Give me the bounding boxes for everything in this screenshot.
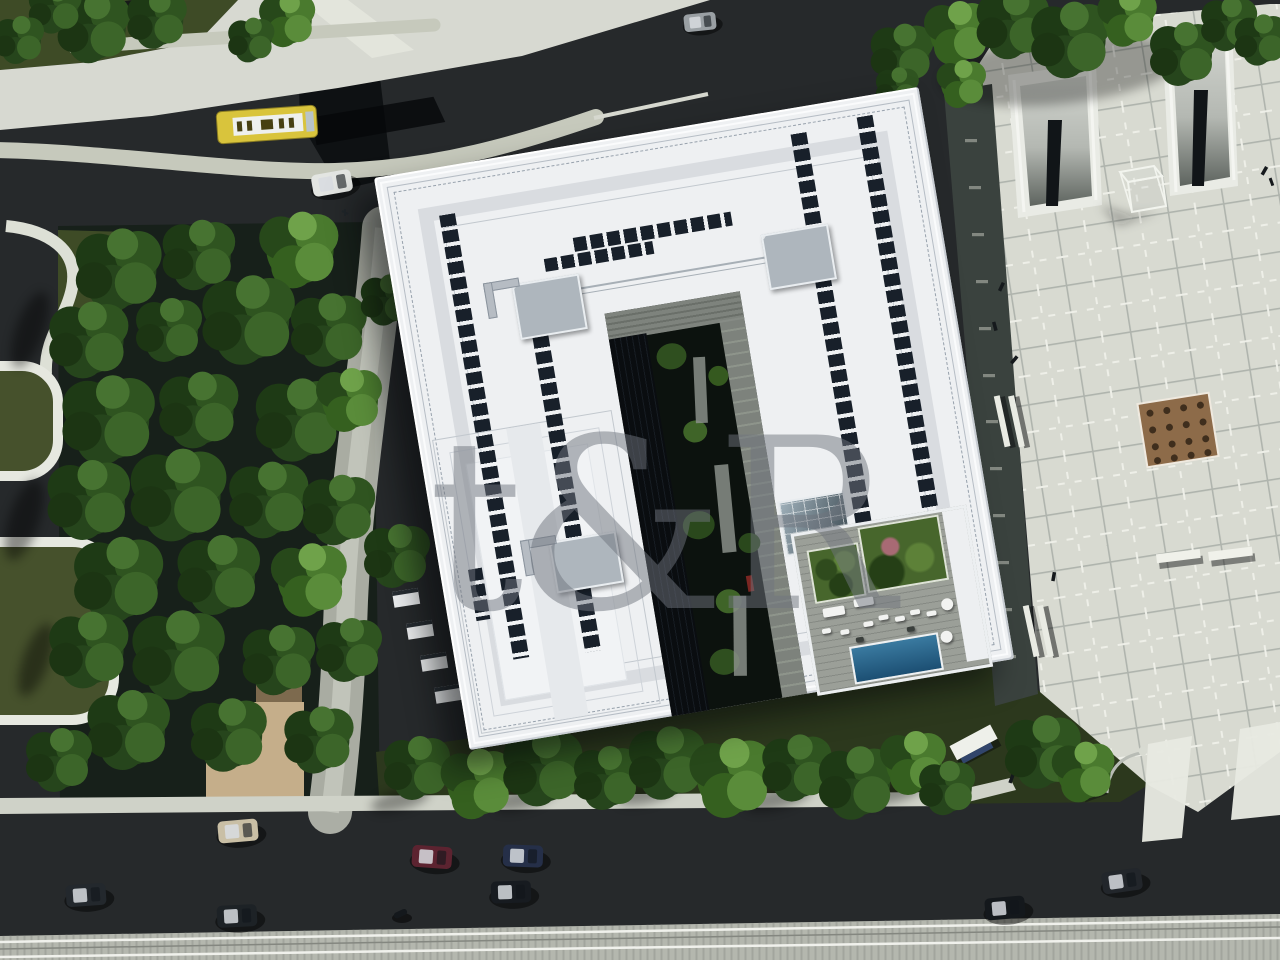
main-building (374, 87, 1014, 750)
terrace-planter (806, 542, 866, 604)
pool-terrace (790, 505, 993, 696)
parasol (940, 597, 954, 611)
architectural-aerial-rendering: t&R (0, 0, 1280, 960)
courtyard-red-object (746, 575, 755, 592)
tree-grate-square (1137, 393, 1218, 467)
roof-maintenance-unit (761, 224, 837, 290)
roof-maintenance-unit (512, 274, 588, 340)
terrace-planter (857, 514, 949, 593)
parasol (940, 630, 954, 644)
roof-maintenance-unit (549, 531, 625, 594)
grass-island (0, 366, 58, 476)
